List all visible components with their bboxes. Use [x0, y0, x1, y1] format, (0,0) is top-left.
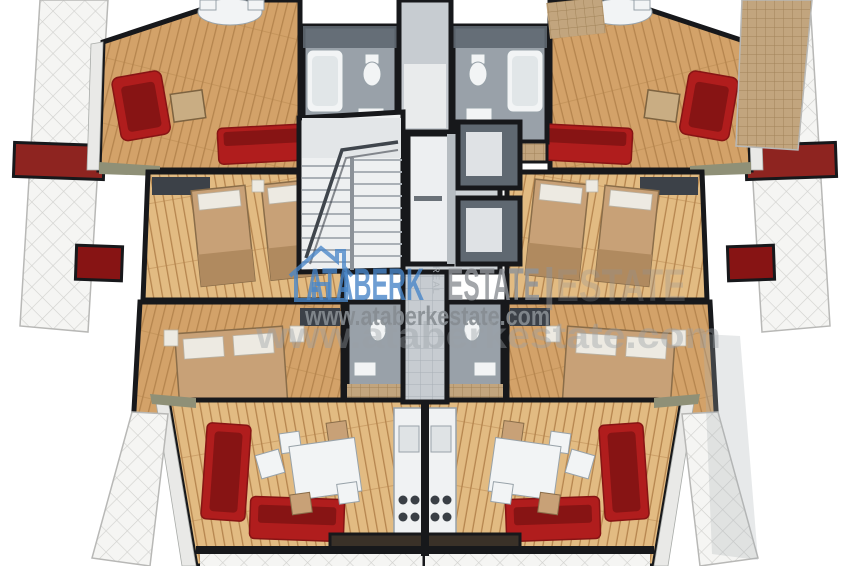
coffee-table — [170, 90, 206, 122]
dining-chair — [337, 482, 360, 505]
watermark-website-echo: www.ataberkestate.com — [255, 315, 721, 356]
bottom-wall — [196, 546, 426, 554]
service-shaft — [458, 198, 520, 264]
balcony-dark-box — [75, 245, 122, 281]
mosaic-strip — [347, 384, 403, 398]
toilet — [363, 62, 381, 86]
dining-chair — [200, 0, 216, 10]
armchair — [111, 70, 171, 142]
stair-stringer — [350, 158, 354, 270]
bathroom-wall-shade — [303, 26, 397, 48]
elevator — [408, 134, 456, 264]
living-dining-room — [150, 394, 426, 566]
watermark: ATABERK REAL ESTATE | ESTATE www.ataberk… — [255, 248, 721, 356]
watermark-brand-secondary-echo: ESTATE — [556, 260, 686, 311]
nightstand — [164, 330, 178, 346]
dining-chair — [290, 492, 313, 515]
elevator-door — [414, 196, 442, 201]
entry-mosaic — [546, 0, 605, 39]
nightstand — [252, 180, 264, 192]
single-bed — [191, 185, 255, 286]
elevator-shade — [447, 134, 456, 264]
dining-chair — [248, 0, 264, 10]
watermark-brand-vertical: REAL — [430, 266, 441, 295]
bathtub-inner — [312, 56, 338, 106]
corridor-landing — [404, 64, 446, 128]
bottom-balcony-tiles — [200, 554, 425, 566]
center-party-wall — [421, 402, 429, 556]
service-shaft — [458, 122, 520, 188]
kitchen-sink — [399, 426, 419, 452]
sink — [354, 362, 376, 376]
floor-plan-render: ATABERK REAL ESTATE | ESTATE www.ataberk… — [0, 0, 850, 566]
staircase — [299, 112, 403, 272]
balcony-tan-tiles — [736, 0, 812, 150]
